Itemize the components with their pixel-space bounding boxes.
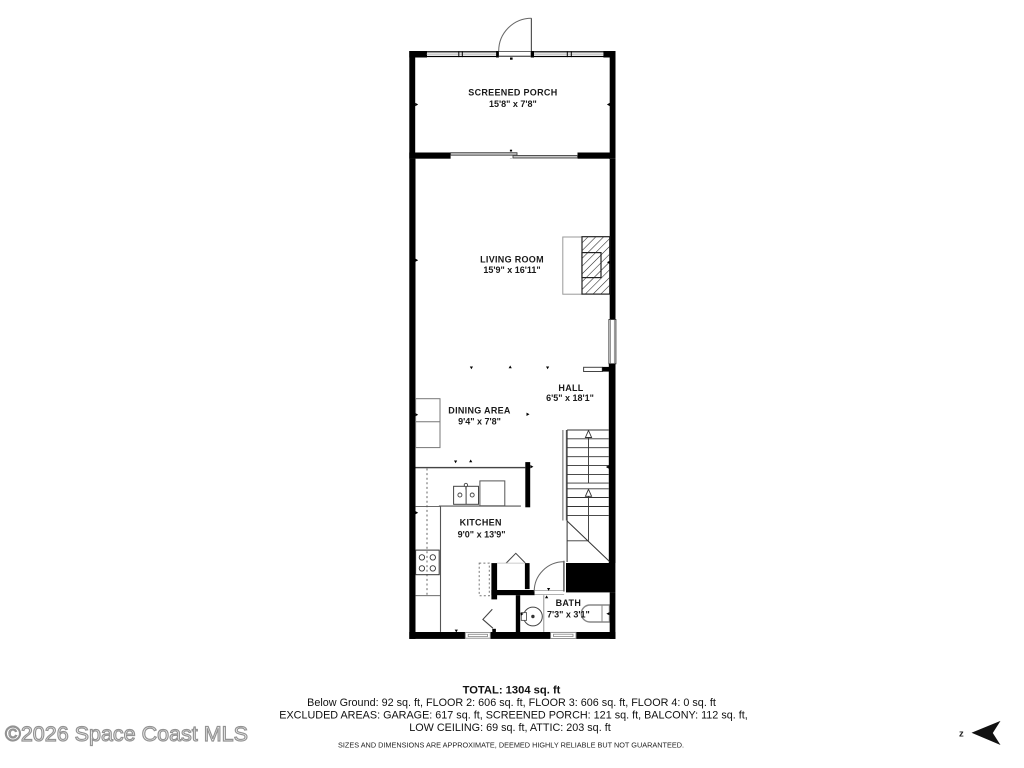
- svg-text:HALL: HALL: [558, 383, 583, 393]
- svg-text:SCREENED PORCH: SCREENED PORCH: [468, 87, 557, 97]
- svg-text:DINING AREA: DINING AREA: [448, 405, 511, 415]
- svg-text:LIVING ROOM: LIVING ROOM: [480, 255, 544, 265]
- svg-text:Below Ground: 92 sq. ft, FLOOR: Below Ground: 92 sq. ft, FLOOR 2: 606 sq…: [307, 697, 716, 709]
- svg-text:9'0" x 13'9": 9'0" x 13'9": [458, 530, 506, 540]
- svg-text:6'5" x 18'1": 6'5" x 18'1": [546, 393, 594, 403]
- svg-text:BATH: BATH: [556, 598, 582, 608]
- svg-text:SIZES AND DIMENSIONS ARE APPRO: SIZES AND DIMENSIONS ARE APPROXIMATE, DE…: [338, 741, 684, 750]
- svg-text:9'4" x 7'8": 9'4" x 7'8": [458, 417, 501, 427]
- svg-text:15'8" x 7'8": 15'8" x 7'8": [489, 99, 537, 109]
- svg-text:LOW CEILING: 69 sq. ft, ATTIC:: LOW CEILING: 69 sq. ft, ATTIC: 203 sq. f…: [409, 722, 610, 734]
- svg-text:EXCLUDED AREAS: GARAGE: 617 sq: EXCLUDED AREAS: GARAGE: 617 sq. ft, SCRE…: [279, 709, 747, 721]
- svg-text:TOTAL: 1304 sq. ft: TOTAL: 1304 sq. ft: [463, 684, 561, 696]
- svg-text:KITCHEN: KITCHEN: [460, 518, 502, 528]
- svg-text:15'9" x 16'11": 15'9" x 16'11": [483, 265, 540, 275]
- svg-text:z: z: [959, 729, 964, 740]
- svg-text:©2026 Space Coast MLS: ©2026 Space Coast MLS: [5, 722, 248, 746]
- svg-text:7'3" x 3'1": 7'3" x 3'1": [547, 609, 590, 619]
